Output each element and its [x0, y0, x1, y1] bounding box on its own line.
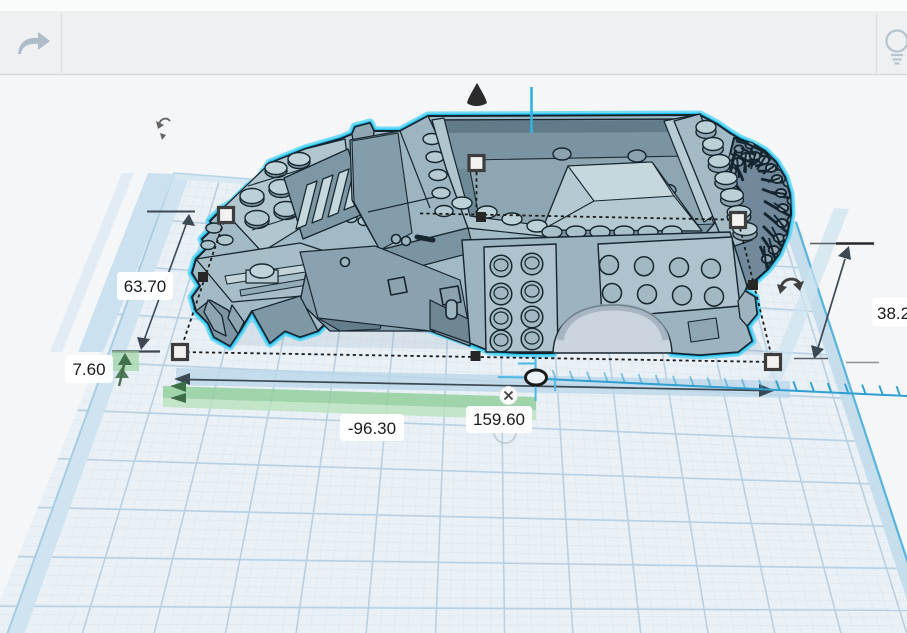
svg-text:63.70: 63.70 — [124, 277, 167, 296]
svg-text:7.60: 7.60 — [72, 360, 105, 379]
svg-text:-96.30: -96.30 — [348, 419, 396, 438]
svg-text:159.60: 159.60 — [473, 410, 525, 429]
svg-text:38.2: 38.2 — [877, 304, 907, 323]
